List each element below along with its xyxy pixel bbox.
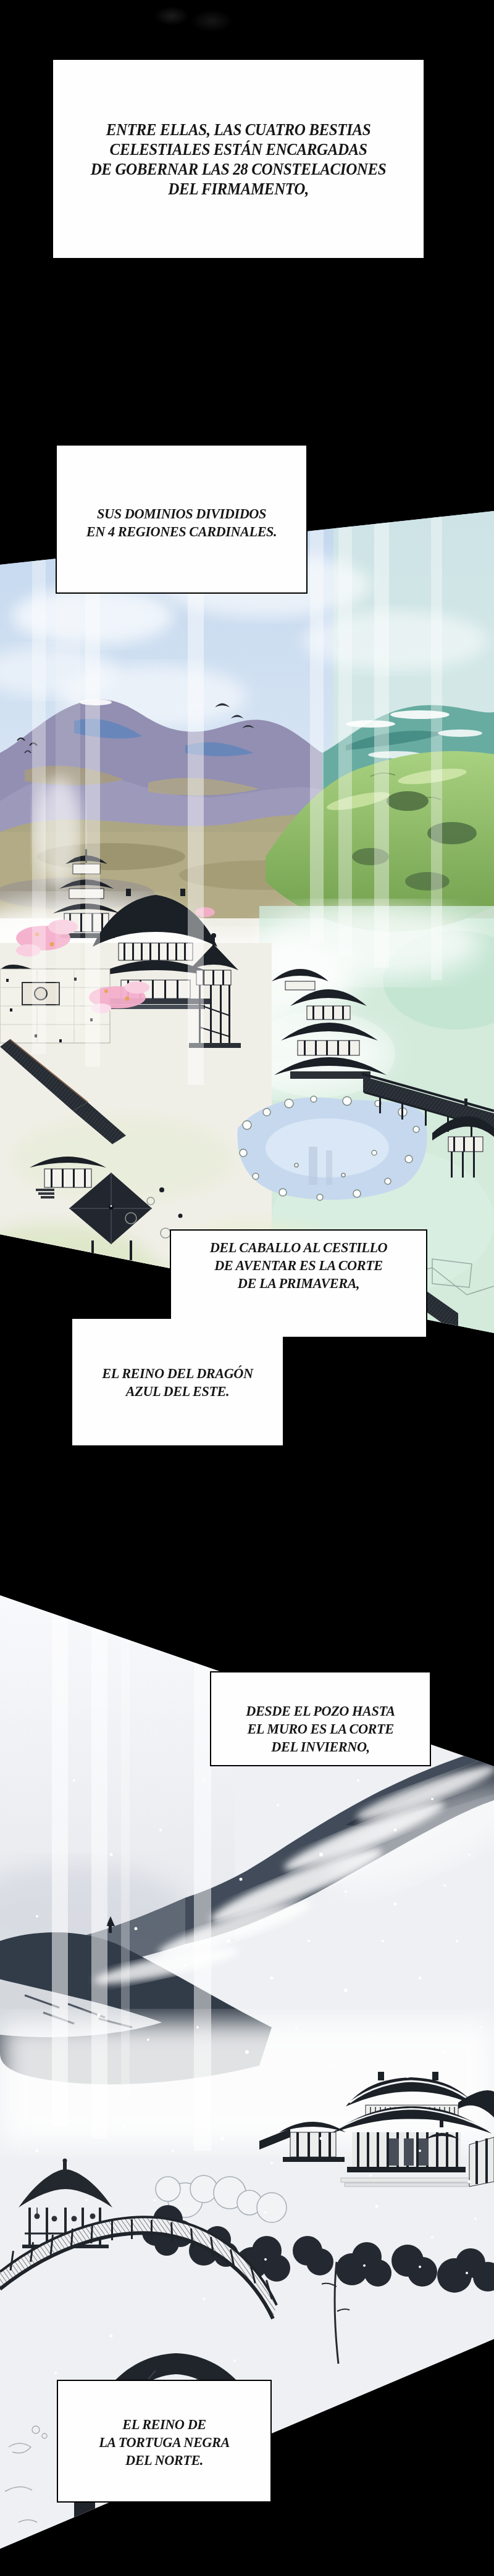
caption-line: DEL FIRMAMENTO,: [66, 179, 411, 199]
caption-line: EL MURO ES LA CORTE: [219, 1720, 422, 1738]
pond: [237, 1096, 427, 1200]
caption-box-4: EL REINO DEL DRAGÓN AZUL DEL ESTE.: [72, 1319, 283, 1445]
caption-line: DE AVENTAR ES LA CORTE: [180, 1257, 417, 1274]
caption-line: AZUL DEL ESTE.: [80, 1382, 275, 1400]
caption-box-5: DESDE EL POZO HASTA EL MURO ES LA CORTE …: [210, 1671, 431, 1766]
caption-line: DEL INVIERNO,: [219, 1738, 422, 1756]
caption-line: DESDE EL POZO HASTA: [219, 1702, 422, 1720]
caption-line: DE GOBERNAR LAS 28 CONSTELACIONES: [66, 159, 411, 179]
caption-line: EN 4 REGIONES CARDINALES.: [65, 523, 298, 541]
caption-line: DEL CABALLO AL CESTILLO: [180, 1239, 417, 1257]
caption-box-2: SUS DOMINIOS DIVIDIDOS EN 4 REGIONES CAR…: [56, 444, 308, 594]
caption-box-6: EL REINO DE LA TORTUGA NEGRA DEL NORTE.: [57, 2380, 272, 2503]
caption-line: SUS DOMINIOS DIVIDIDOS: [65, 505, 298, 523]
caption-line: EL REINO DEL DRAGÓN: [80, 1365, 275, 1382]
caption-line: LA TORTUGA NEGRA: [65, 2433, 263, 2451]
caption-line: DE LA PRIMAVERA,: [180, 1274, 417, 1292]
spring-panel-illustration: [0, 511, 494, 1342]
webtoon-page: ENTRE ELLAS, LAS CUATRO BESTIAS CELESTIA…: [0, 0, 494, 2576]
panel-spring-east: [0, 511, 494, 1342]
top-ink-smudge: [153, 0, 246, 43]
caption-line: CELESTIALES ESTÁN ENCARGADAS: [66, 139, 411, 159]
caption-line: EL REINO DE: [65, 2416, 263, 2433]
caption-line: DEL NORTE.: [65, 2451, 263, 2469]
caption-line: ENTRE ELLAS, LAS CUATRO BESTIAS: [66, 120, 411, 139]
caption-box-1: ENTRE ELLAS, LAS CUATRO BESTIAS CELESTIA…: [52, 59, 425, 259]
